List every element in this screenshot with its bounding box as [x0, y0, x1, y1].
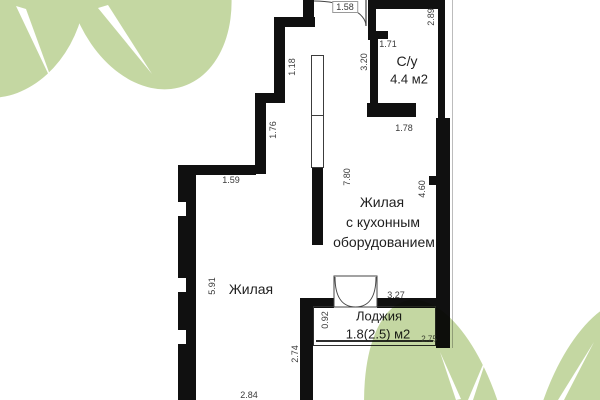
dim-hall-lower: 1.76 — [268, 121, 278, 139]
dim-living-bottom: 2.84 — [240, 390, 258, 400]
dim-loggia-inner: 2.75 — [421, 335, 437, 344]
dim-entry-door: 1.58 — [332, 1, 358, 13]
room-label-living: Жилая — [229, 281, 273, 297]
wall-bath-left — [370, 38, 378, 105]
wall-hall-lower-left — [255, 93, 266, 174]
leaf-vein — [98, 5, 152, 74]
dim-bath-top: 1.71 — [379, 39, 397, 49]
wall-inner-lower — [300, 298, 313, 400]
wall-notch — [178, 278, 186, 292]
wall-right-tick — [429, 176, 436, 185]
room-label-kitchen-line2: с кухонным — [346, 214, 420, 230]
dim-living-top: 1.59 — [222, 175, 240, 185]
room-label-kitchen-line1: Жилая — [360, 194, 404, 210]
duct-shaft-upper — [311, 55, 324, 116]
room-label-bathroom-name: С/у — [397, 53, 418, 69]
french-door-left-leaf — [335, 277, 356, 307]
dim-loggia-left: 0.92 — [320, 311, 330, 329]
dim-bath-left: 3.20 — [359, 53, 369, 71]
dim-loggia-top: 3.27 — [387, 290, 405, 300]
french-door-right-leaf — [356, 277, 377, 307]
room-label-loggia-name: Лоджия — [356, 309, 402, 324]
leaf-icon — [499, 282, 600, 400]
wall-right-outer — [436, 118, 450, 348]
dimension-extension-line — [452, 0, 453, 348]
leaf-vein — [16, 6, 54, 86]
dim-living-right: 2.74 — [290, 345, 300, 363]
dim-bath-right: 2.89 — [426, 8, 436, 26]
dim-hall-upper: 1.18 — [287, 58, 297, 76]
wall-notch — [178, 202, 186, 216]
wall-notch — [178, 330, 186, 344]
wall-hall-upper-left — [274, 17, 285, 103]
room-label-kitchen-line3: оборудованием — [333, 234, 435, 250]
dim-kitchen-left: 7.80 — [342, 168, 352, 186]
leaf-icon — [0, 0, 112, 121]
wall-kitchen-left — [312, 167, 323, 245]
leaf-group-top-left — [0, 0, 259, 121]
leaf-vein — [558, 342, 594, 400]
wall-bath-right — [438, 0, 445, 118]
room-label-loggia-area: 1.8(2.5) м2 — [346, 327, 411, 342]
leaf-vein — [468, 348, 490, 400]
dim-living-left: 5.91 — [207, 277, 217, 295]
duct-shaft-lower — [311, 115, 324, 168]
floor-plan: 1.58 2.89 1.71 3.20 1.18 1.76 1.59 1.78 … — [0, 0, 600, 400]
leaf-icon — [37, 0, 258, 111]
french-door-frame — [334, 276, 377, 307]
dim-kitchen-right: 4.60 — [417, 180, 427, 198]
room-label-bathroom-area: 4.4 м2 — [390, 72, 428, 87]
wall-living-top — [186, 165, 256, 175]
wall-bath-bottom — [367, 103, 416, 117]
dim-bath-bottom: 1.78 — [395, 123, 413, 133]
leaf-vein — [440, 352, 461, 400]
